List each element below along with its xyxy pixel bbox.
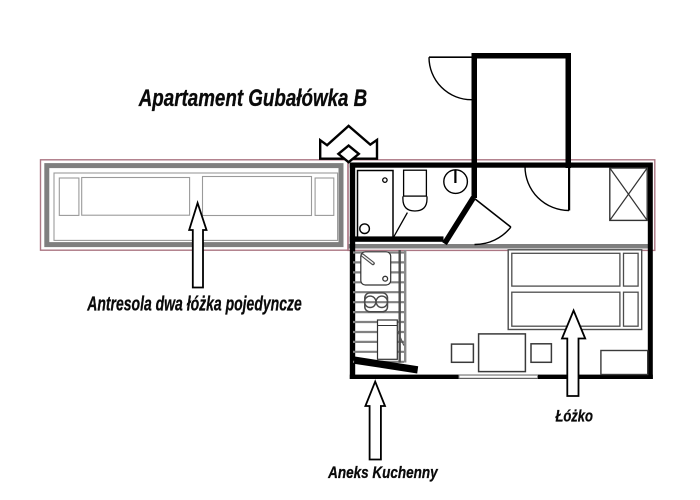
svg-text:Aneks Kuchenny: Aneks Kuchenny [327, 463, 439, 482]
svg-text:Apartament Gubałówka B: Apartament Gubałówka B [138, 85, 367, 112]
svg-text:Antresola dwa łóżka pojedyncze: Antresola dwa łóżka pojedyncze [87, 293, 302, 316]
svg-text:Łóżko: Łóżko [555, 408, 593, 426]
